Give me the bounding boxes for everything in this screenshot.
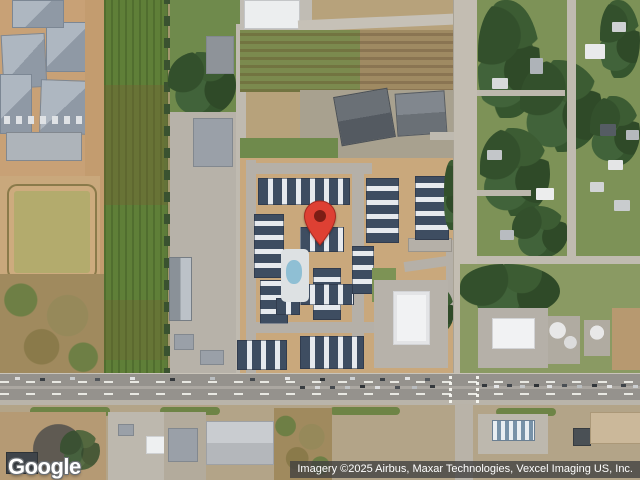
tank-yard	[548, 316, 580, 364]
location-pin-icon[interactable]	[303, 200, 337, 246]
lane-marking	[0, 381, 640, 383]
scrub-lot	[0, 274, 104, 378]
driveway	[477, 90, 565, 96]
attribution-text: Imagery ©2025 Airbus, Maxar Technologies…	[297, 463, 633, 475]
apartment-building	[300, 336, 364, 369]
commercial-white-building	[393, 291, 430, 345]
farm-plots	[240, 30, 360, 92]
white-industrial-building	[244, 0, 300, 29]
house-roof	[608, 160, 623, 170]
house-roof	[585, 44, 605, 59]
building	[12, 0, 64, 28]
barn	[333, 88, 396, 147]
building	[193, 118, 233, 167]
apartment-building	[254, 214, 284, 278]
side-street	[430, 132, 454, 140]
farm-building	[206, 36, 234, 74]
building	[0, 74, 32, 134]
apartment-building	[366, 178, 399, 243]
crosswalk	[476, 374, 479, 403]
barn	[395, 90, 448, 136]
building	[168, 428, 198, 462]
gas-station-canopy	[492, 420, 535, 441]
fallow-band	[104, 300, 168, 360]
google-logo[interactable]: Google	[8, 454, 81, 480]
fallow-band	[104, 85, 168, 205]
house-roof	[536, 188, 554, 200]
house-roof	[626, 130, 639, 140]
trailer-row	[4, 116, 82, 124]
building	[39, 79, 91, 135]
crosswalk	[449, 374, 452, 403]
house-roof	[590, 182, 604, 192]
swimming-pool	[286, 260, 302, 284]
pin-core	[314, 210, 326, 222]
parking-row	[408, 238, 452, 252]
house-roof	[530, 58, 543, 74]
warehouse	[206, 421, 274, 465]
house-roof	[500, 230, 514, 240]
apartment-building	[237, 340, 287, 370]
commercial-white-building	[492, 318, 535, 349]
top-cross-road	[298, 14, 456, 32]
verge	[330, 407, 400, 415]
building	[118, 424, 134, 436]
pin-body	[305, 201, 336, 245]
house-roof	[487, 150, 502, 160]
tank-yard	[584, 320, 610, 356]
gabled-building	[169, 257, 192, 321]
house-roof	[612, 22, 626, 32]
house-roof	[614, 200, 630, 211]
house-roof	[492, 78, 508, 89]
beige-building	[590, 412, 640, 444]
cars-on-highway	[0, 373, 5, 376]
tree-cluster	[600, 0, 640, 78]
residential-street	[567, 0, 576, 262]
lane-marking	[0, 393, 640, 395]
retention-pond	[9, 186, 95, 278]
apartment-building	[352, 246, 374, 294]
dirt-lot	[612, 308, 640, 370]
shed	[200, 350, 224, 365]
shed	[174, 334, 194, 350]
canopy-building	[146, 436, 166, 454]
median	[0, 386, 640, 389]
house-roof	[600, 124, 616, 136]
tree-cluster	[480, 128, 550, 216]
imagery-attribution: Imagery ©2025 Airbus, Maxar Technologies…	[290, 461, 640, 478]
driveway	[477, 190, 531, 196]
dark-building	[573, 428, 591, 446]
residential-street	[477, 256, 640, 264]
farm-plots	[360, 30, 456, 92]
tree-cluster	[512, 206, 568, 258]
building	[6, 132, 82, 161]
satellite-map-canvas[interactable]: Google Imagery ©2025 Airbus, Maxar Techn…	[0, 0, 640, 480]
building	[46, 22, 88, 72]
